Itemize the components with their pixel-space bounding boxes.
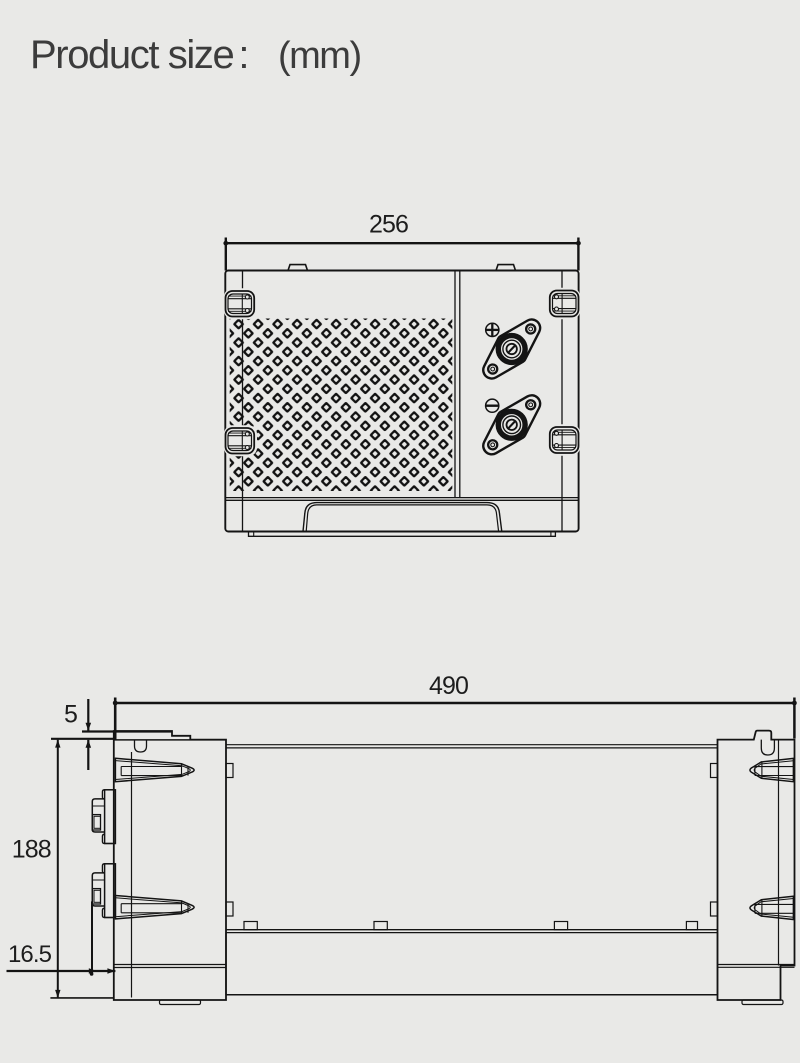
svg-text:490: 490	[429, 672, 468, 700]
svg-text:188: 188	[12, 835, 51, 863]
svg-text:5: 5	[64, 701, 77, 729]
svg-text:Product size:: Product size:	[30, 33, 248, 77]
svg-text:256: 256	[369, 211, 408, 239]
svg-text:16.5: 16.5	[8, 941, 52, 968]
svg-text:(mm): (mm)	[278, 35, 361, 77]
